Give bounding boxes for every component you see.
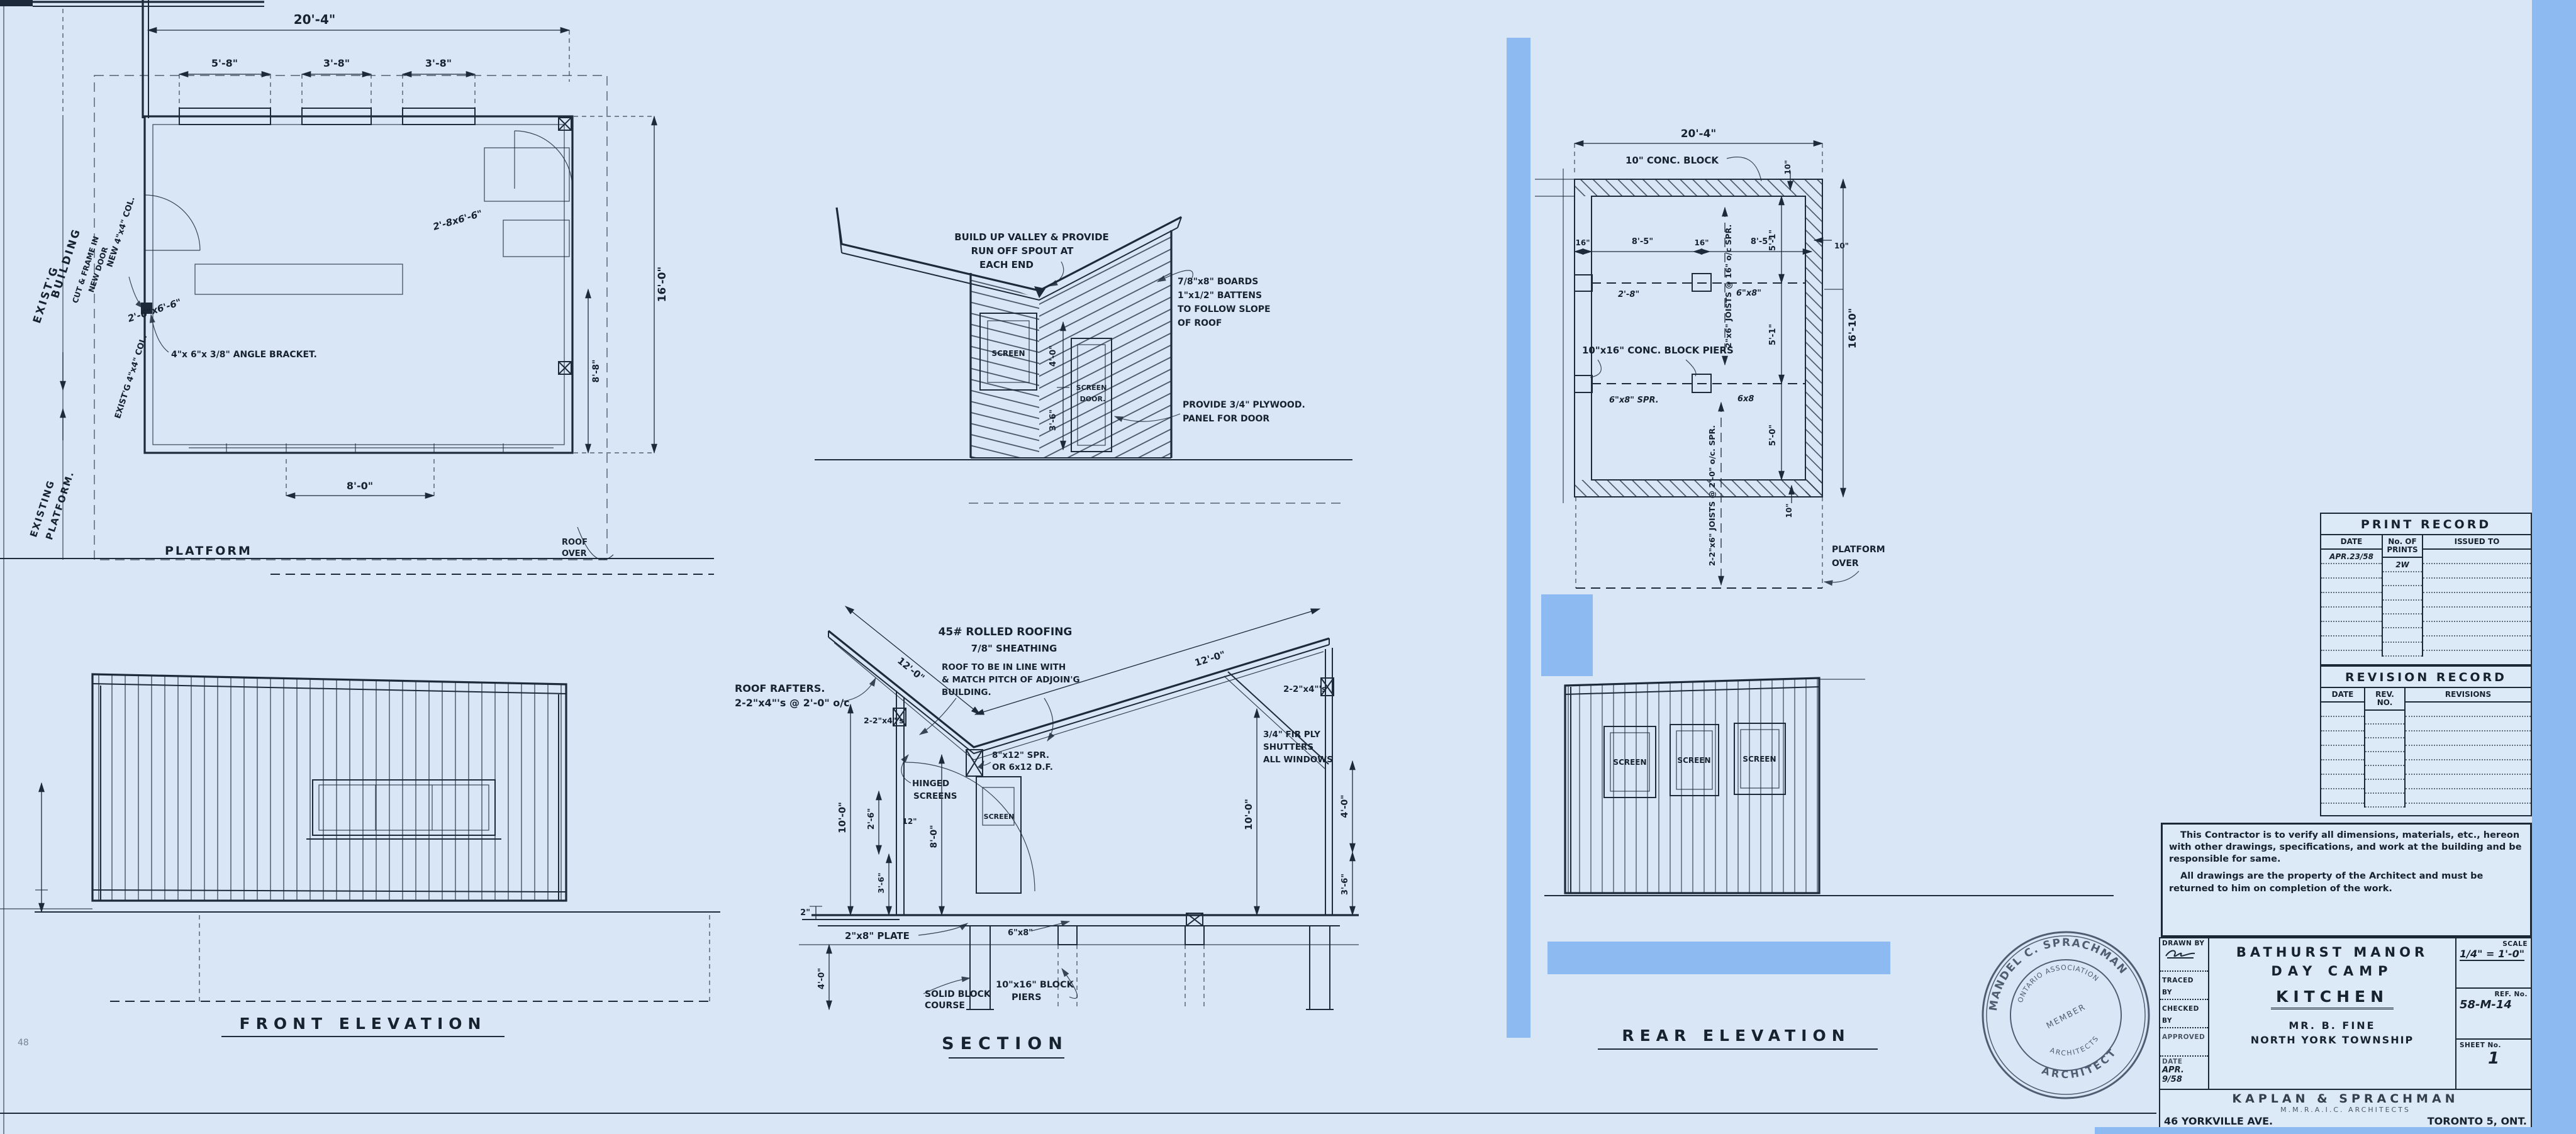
blueprint-sheet: 20'-4" 5'-8" 3'-8" 3'-8" [0, 0, 2576, 1134]
floor-plan: 20'-4" 5'-8" 3'-8" 3'-8" [0, 0, 714, 574]
section-title: SECTION [942, 1034, 1069, 1053]
traced-by-label: TRACED BY [2162, 977, 2194, 996]
overlay-square [1541, 594, 1593, 676]
front-elevation: FRONT ELEVATION 48 [0, 674, 720, 1048]
shutters-note-3: ALL WINDOWS [1263, 755, 1333, 765]
floor-plan-overall-dim: 20'-4" [294, 12, 336, 27]
inline-note-3: BUILDING. [942, 687, 991, 698]
fdim-51a: 5'-1" [1768, 230, 1778, 251]
hinged-label-2: SCREENS [913, 791, 957, 801]
win-dim-2: 3'-8" [323, 57, 350, 69]
foundation-overall-dim: 20'-4" [1681, 128, 1717, 140]
print-record-col-issued: ISSUED TO [2423, 535, 2531, 657]
front-elevation-title: FRONT ELEVATION [240, 1014, 487, 1033]
revision-record-header-revisions: REVISIONS [2406, 688, 2531, 703]
door-right-size: 2'-8x6'-6" [432, 208, 484, 233]
revision-record-header-date: DATE [2321, 688, 2364, 703]
scale-label: SCALE [2460, 940, 2528, 948]
revision-record-header-rev: REV. NO. [2365, 688, 2404, 711]
print-record-col-date: DATE APR.23/58 [2321, 535, 2383, 657]
project-line-2: DAY CAMP [2209, 964, 2455, 979]
firm-band: KAPLAN & SPRACHMAN M.M.R.A.I.C. ARCHITEC… [2160, 1089, 2531, 1130]
plywood-note-1: PROVIDE 3/4" PLYWOOD. [1183, 400, 1305, 410]
plywood-note-2: PANEL FOR DOOR [1183, 414, 1269, 424]
ref-label: REF. No. [2460, 991, 2528, 998]
rear-screen-3: SCREEN [1742, 755, 1776, 764]
rear-screen-1: SCREEN [1613, 758, 1646, 767]
overlay-horizontal-bar [1547, 942, 1890, 974]
fdim-50: 5'-0" [1768, 425, 1778, 446]
fdim-16a: 16" [1576, 238, 1590, 247]
print-record-col-prints: No. OF PRINTS 2W [2383, 535, 2423, 657]
inner-dim: 8'-8" [591, 360, 601, 383]
corner-mark: 48 [18, 1038, 29, 1048]
section: SCREEN 45# ROLLED ROOFING 7/8" SHEATHING… [735, 606, 1359, 1058]
fdim-28: 2'-8" [1618, 290, 1639, 299]
platform-label: PLATFORM [165, 544, 252, 558]
ref-value: 58-M-14 [2460, 998, 2528, 1011]
project-line-3: KITCHEN [2271, 987, 2394, 1009]
contractor-note-p2: All drawings are the property of the Arc… [2169, 870, 2524, 894]
contractor-note: This Contractor is to verify all dimensi… [2161, 823, 2532, 937]
solid-block-label-1: SOLID BLOCK [925, 989, 991, 999]
solid-block-label-2: COURSE [925, 1001, 965, 1011]
title-block: DRAWN BY TRACED BY CHECKED BY APPROVED D… [2159, 937, 2532, 1131]
piers-label-2: PIERS [1012, 992, 1042, 1003]
boards-note-3: TO FOLLOW SLOPE [1178, 304, 1271, 314]
dim-80: 8'-0" [929, 825, 939, 848]
foundation-piers-label: 10"x16" CONC. BLOCK PIERS [1582, 345, 1734, 356]
print-record-table: PRINT RECORD DATE APR.23/58 No. OF PRINT… [2320, 513, 2532, 665]
scale-value: 1/4" = 1'-0" [2460, 948, 2524, 961]
door-left-size: 2'-6"x6'-6" [126, 296, 183, 325]
hinged-label-1: HINGED [912, 779, 949, 789]
valley-note-2: RUN OFF SPOUT AT [971, 245, 1074, 257]
drawn-by-signature [2162, 947, 2200, 961]
boards-note-1: 7/8"x8" BOARDS [1178, 277, 1258, 287]
dim-wall-left: 10'-0" [837, 802, 848, 833]
township: NORTH YORK TOWNSHIP [2209, 1034, 2455, 1046]
revision-record-table: REVISION RECORD DATE REV. NO. REVISIONS [2320, 665, 2532, 816]
revision-record-col-rev: REV. NO. [2365, 688, 2406, 808]
shutters-note-2: SHUTTERS [1263, 742, 1313, 752]
fbeam-68spr: 6"x8" SPR. [1609, 396, 1659, 405]
firm-name: KAPLAN & SPRACHMAN [2164, 1092, 2527, 1106]
fdim-16b: 16" [1695, 238, 1709, 247]
overlay-bottom-edge [2095, 1127, 2576, 1134]
angle-bracket-label: 4"x 6"x 3/8" ANGLE BRACKET. [171, 350, 317, 360]
boards-note-2: 1"x1/2" BATTENS [1178, 291, 1262, 301]
new-col-label: NEW 4"x4" COL. [105, 196, 137, 269]
joists1-label: 2"x6" JOISTS @ 16" o/c SPR. [1724, 225, 1733, 348]
svg-text:ARCHITECTS: ARCHITECTS [2047, 1033, 2104, 1064]
dim-12: 12" [903, 817, 917, 826]
roof-dim-right: 12'-0" [1193, 648, 1227, 669]
sheet-value: 1 [2460, 1049, 2528, 1068]
dim-10-bottom: 10" [1785, 504, 1793, 518]
piers-label-1: 10"x16" BLOCK [996, 980, 1074, 990]
print-record-entry-date: APR.23/58 [2321, 550, 2382, 564]
dim-36-right: 3'-6" [1341, 874, 1350, 895]
client-name: MR. B. FINE [2209, 1020, 2455, 1031]
end-screen-door-label-2: DOOR. [1080, 395, 1106, 403]
drawn-by-label: DRAWN BY [2162, 940, 2206, 947]
ref-column: SCALE 1/4" = 1'-0" REF. No. 58-M-14 SHEE… [2456, 938, 2531, 1089]
dim-10-right: 10" [1834, 242, 1849, 250]
print-record-header-prints: No. OF PRINTS [2383, 535, 2422, 558]
inline-note-2: & MATCH PITCH OF ADJOIN'G [942, 675, 1080, 685]
print-record-header-date: DATE [2321, 535, 2382, 550]
dim-26: 2'-6" [867, 808, 876, 830]
dim-36-left: 3'-6" [876, 873, 886, 894]
rear-screen-2: SCREEN [1677, 756, 1710, 765]
boards-note-4: OF ROOF [1178, 318, 1222, 328]
project-column: BATHURST MANOR DAY CAMP KITCHEN MR. B. F… [2209, 938, 2456, 1089]
end-dim-top: 4'-0" [1049, 345, 1058, 367]
dim-40-left: 4'-0" [817, 968, 827, 989]
foundation-y-dims: 5'-1" 5'-1" 5'-0" [1768, 196, 1781, 480]
roof-over-label-1: ROOF [562, 538, 588, 547]
shutters-note-1: 3/4" FIR PLY [1263, 730, 1320, 740]
bottom-dim: 8'-0" [347, 480, 373, 492]
fdim-depth: 16'-10" [1846, 308, 1858, 348]
rafters-note-2: 2-2"x4"'s @ 2'-0" o/c [735, 697, 850, 709]
platform-over-label-1: PLATFORM [1832, 545, 1885, 555]
floor-plan-doors: 2'-6"x6'-6" 2'-8x6'-6" [126, 131, 572, 325]
contractor-note-p1: This Contractor is to verify all dimensi… [2169, 830, 2524, 865]
overlay-vertical-bar [1507, 38, 1531, 1038]
dim-wall-right: 10'-0" [1243, 799, 1254, 830]
conc-block-label: 10" CONC. BLOCK [1625, 155, 1719, 166]
plate-label: 2"x8" PLATE [845, 930, 910, 942]
firm-credentials: M.M.R.A.I.C. ARCHITECTS [2164, 1106, 2527, 1114]
roofing-note: 45# ROLLED ROOFING [939, 626, 1073, 638]
dim-10-top: 10" [1783, 160, 1792, 175]
foundation-plan: 20'-4" 10" CONC. BLOCK 10" 10" 10" 16" 8… [1535, 128, 1885, 588]
end-dim-bottom: 3'-6" [1049, 409, 1058, 431]
checked-by-label: CHECKED BY [2162, 1005, 2199, 1025]
rafters-note-1: ROOF RAFTERS. [735, 682, 825, 694]
beam-68-label: 6"x8" [1008, 928, 1033, 938]
section-screen-label: SCREEN [984, 813, 1015, 821]
beam-label-1: 8"x12" SPR. [992, 750, 1049, 760]
win-dim-1: 5'-8" [211, 57, 238, 69]
sheet-label: SHEET No. [2460, 1042, 2528, 1049]
fbeam-6x8: 6x8 [1737, 394, 1754, 404]
end-elevation: SCREEN SCREEN DOOR. 4'-0" 3'-6" BUILD UP… [815, 208, 1352, 503]
floor-plan-window-dims: 5'-8" 3'-8" 3'-8" [179, 57, 475, 112]
revision-record-col-date: DATE [2321, 688, 2365, 808]
end-screen-label: SCREEN [991, 349, 1025, 358]
fdim-85a: 8'-5" [1632, 237, 1653, 247]
platform-over-label-2: OVER [1832, 559, 1859, 569]
firm-address: 46 YORKVILLE AVE. [2164, 1115, 2273, 1127]
win-dim-3: 3'-8" [425, 57, 452, 69]
posts-right-label: 2-2"x4"'s [1283, 684, 1327, 694]
approved-label: APPROVED [2162, 1033, 2205, 1041]
posts-left-label: 2-2"x4"'s [864, 716, 904, 725]
print-record-title: PRINT RECORD [2321, 514, 2531, 535]
roof-over-label-2: OVER [562, 549, 587, 559]
fbeam-68: 6"x8" [1736, 289, 1761, 298]
overlay-right-edge [2532, 0, 2576, 1134]
beam-label-2: OR 6x12 D.F. [992, 762, 1053, 772]
print-record-entry-prints: 2W [2383, 558, 2422, 572]
dim-40-right: 4'-0" [1340, 795, 1350, 818]
revision-record-title: REVISION RECORD [2321, 667, 2531, 688]
floor-plan-walls [142, 108, 572, 453]
revision-record-col-revisions: REVISIONS [2406, 688, 2531, 808]
valley-note-3: EACH END [979, 259, 1034, 270]
valley-note-1: BUILD UP VALLEY & PROVIDE [954, 231, 1109, 243]
dim-2: 2" [800, 908, 810, 918]
rear-elevation-title: REAR ELEVATION [1622, 1026, 1850, 1045]
print-record-header-issued: ISSUED TO [2423, 535, 2531, 550]
joists2-label: 2-2"x6" JOISTS @ 2'-0" o/c. SPR. [1707, 425, 1717, 566]
depth-dim: 16'-0" [656, 267, 669, 303]
end-screen-door-label-1: SCREEN [1076, 384, 1107, 392]
fdim-51b: 5'-1" [1768, 324, 1778, 345]
seal-member: MEMBER [2045, 1003, 2088, 1031]
inline-note-1: ROOF TO BE IN LINE WITH [942, 662, 1066, 672]
firm-city: TORONTO 5, ONT. [2428, 1115, 2527, 1127]
project-line-1: BATHURST MANOR [2209, 945, 2455, 960]
seal-assoc-2: ARCHITECTS [2047, 1033, 2104, 1064]
sheathing-note: 7/8" SHEATHING [971, 643, 1057, 654]
